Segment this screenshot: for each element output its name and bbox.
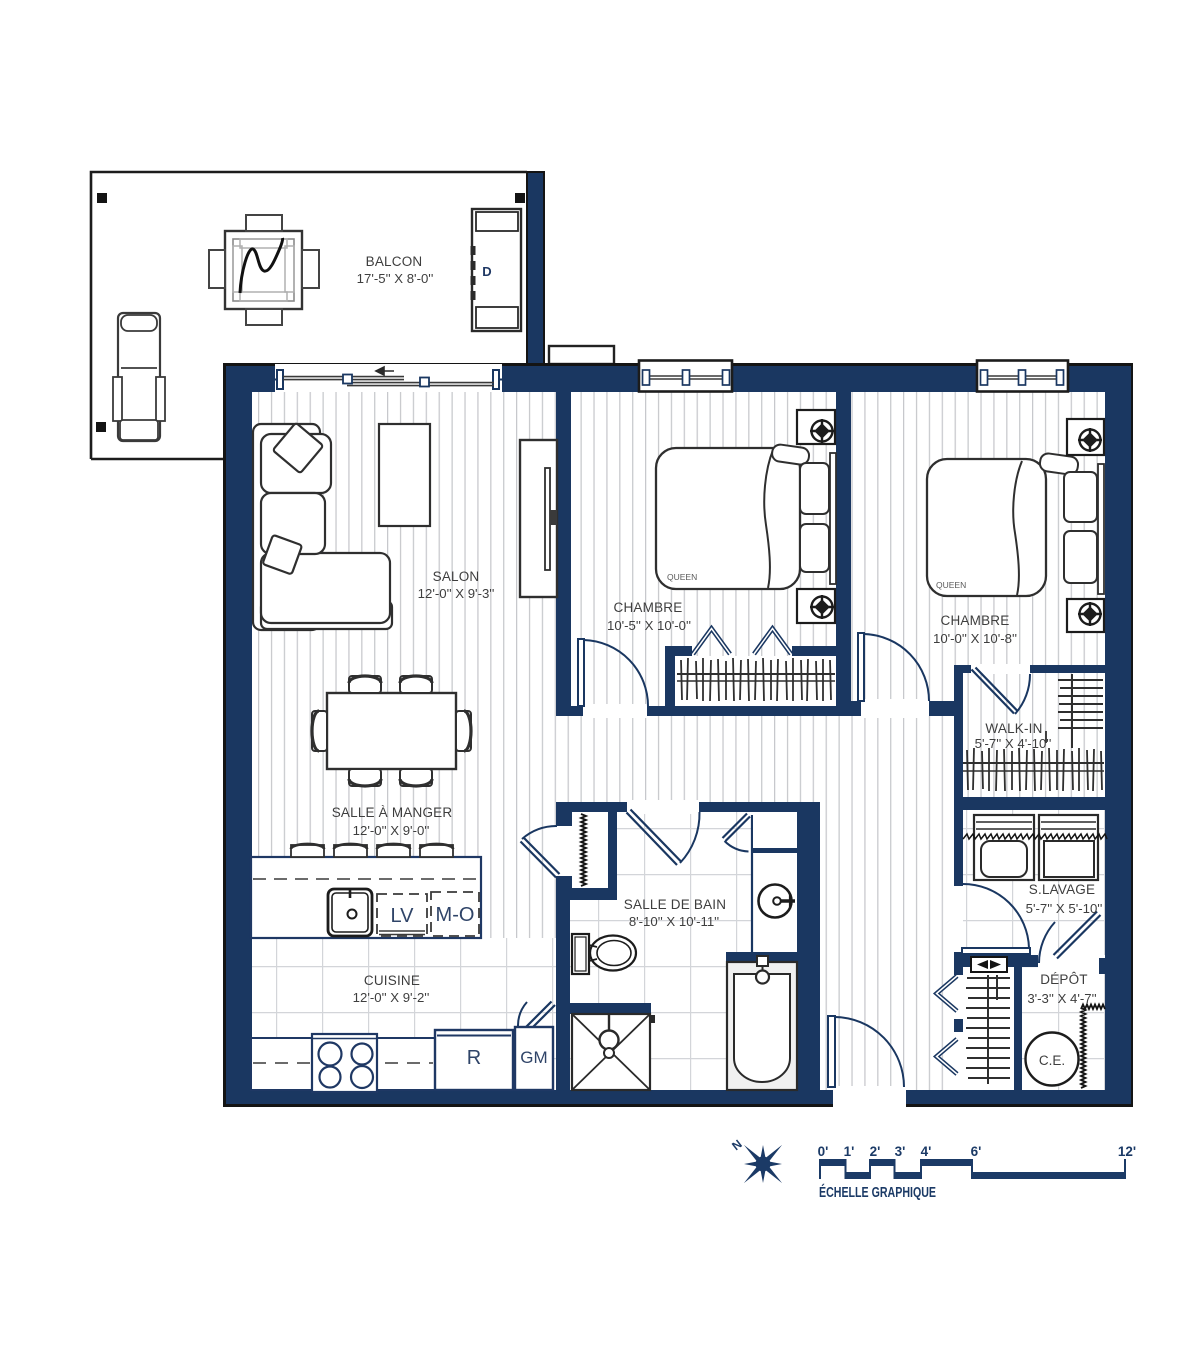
svg-text:10'-0'' X 10'-8'': 10'-0'' X 10'-8'' — [933, 631, 1017, 646]
svg-text:QUEEN: QUEEN — [667, 572, 697, 582]
svg-text:4': 4' — [921, 1144, 932, 1159]
svg-text:CUISINE: CUISINE — [364, 973, 420, 988]
svg-text:1': 1' — [844, 1144, 855, 1159]
svg-text:QUEEN: QUEEN — [936, 580, 966, 590]
svg-text:SALLE DE BAIN: SALLE DE BAIN — [624, 897, 726, 912]
svg-text:ÉCHELLE GRAPHIQUE: ÉCHELLE GRAPHIQUE — [819, 1184, 936, 1201]
svg-text:SALLE À MANGER: SALLE À MANGER — [332, 805, 453, 820]
svg-text:DÉPÔT: DÉPÔT — [1040, 972, 1088, 987]
svg-text:10'-5'' X 10'-0'': 10'-5'' X 10'-0'' — [607, 618, 691, 633]
svg-text:6': 6' — [971, 1144, 982, 1159]
svg-text:12': 12' — [1118, 1144, 1136, 1159]
svg-text:8'-10'' X 10'-11'': 8'-10'' X 10'-11'' — [629, 914, 719, 929]
svg-text:S.LAVAGE: S.LAVAGE — [1029, 882, 1095, 897]
svg-text:M-O: M-O — [436, 904, 475, 926]
svg-text:CHAMBRE: CHAMBRE — [614, 600, 683, 615]
svg-text:0': 0' — [818, 1144, 829, 1159]
svg-text:SALON: SALON — [433, 569, 480, 584]
svg-text:D: D — [482, 264, 491, 279]
svg-text:17'-5'' X 8'-0'': 17'-5'' X 8'-0'' — [357, 271, 434, 286]
svg-text:3': 3' — [895, 1144, 906, 1159]
svg-text:CHAMBRE: CHAMBRE — [941, 613, 1010, 628]
svg-text:C.E.: C.E. — [1039, 1053, 1065, 1068]
svg-text:R: R — [467, 1047, 481, 1069]
svg-text:2': 2' — [870, 1144, 881, 1159]
svg-text:BALCON: BALCON — [366, 254, 423, 269]
svg-text:5'-7'' X 4'-10'': 5'-7'' X 4'-10'' — [975, 736, 1052, 751]
svg-text:GM: GM — [520, 1048, 547, 1067]
svg-text:WALK-IN: WALK-IN — [985, 721, 1042, 736]
svg-text:12'-0'' X 9'-2'': 12'-0'' X 9'-2'' — [353, 990, 430, 1005]
svg-text:12'-0'' X 9'-0'': 12'-0'' X 9'-0'' — [353, 823, 430, 838]
svg-text:12'-0'' X 9'-3'': 12'-0'' X 9'-3'' — [418, 586, 495, 601]
svg-text:3'-3'' X 4'-7'': 3'-3'' X 4'-7'' — [1027, 991, 1096, 1006]
svg-text:LV: LV — [391, 905, 415, 927]
svg-text:5'-7'' X 5'-10'': 5'-7'' X 5'-10'' — [1026, 901, 1103, 916]
